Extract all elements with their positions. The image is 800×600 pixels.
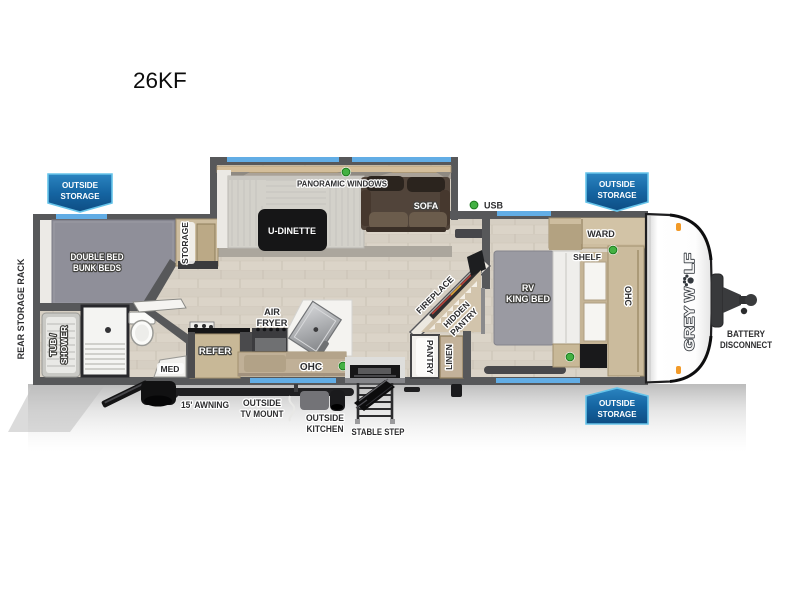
svg-text:BUNK BEDS: BUNK BEDS xyxy=(73,263,121,273)
svg-text:OHC: OHC xyxy=(623,286,633,307)
svg-text:STORAGE: STORAGE xyxy=(61,191,100,201)
svg-text:REFER: REFER xyxy=(199,346,231,357)
svg-text:REAR STORAGE RACK: REAR STORAGE RACK xyxy=(16,258,26,359)
svg-text:MED: MED xyxy=(161,364,180,374)
svg-text:STORAGE: STORAGE xyxy=(598,190,637,200)
svg-text:DISCONNECT: DISCONNECT xyxy=(720,340,772,351)
svg-text:DOUBLE BED: DOUBLE BED xyxy=(71,252,124,262)
svg-text:26KF: 26KF xyxy=(133,68,187,93)
svg-text:USB: USB xyxy=(484,201,504,211)
svg-text:KING BED: KING BED xyxy=(506,294,551,304)
svg-text:OUTSIDE: OUTSIDE xyxy=(599,398,635,408)
svg-text:OUTSIDE: OUTSIDE xyxy=(62,180,98,190)
svg-text:15' AWNING: 15' AWNING xyxy=(181,400,229,411)
svg-text:OUTSIDE: OUTSIDE xyxy=(243,398,281,409)
svg-text:RV: RV xyxy=(522,283,534,293)
svg-text:SHOWER: SHOWER xyxy=(59,326,69,364)
svg-text:LINEN: LINEN xyxy=(444,344,454,370)
svg-text:OUTSIDE: OUTSIDE xyxy=(306,413,344,424)
svg-text:LF: LF xyxy=(682,253,697,274)
svg-text:STORAGE: STORAGE xyxy=(180,222,190,264)
svg-text:KITCHEN: KITCHEN xyxy=(307,424,344,435)
svg-text:PANORAMIC WINDOWS: PANORAMIC WINDOWS xyxy=(297,179,387,189)
svg-text:AIR: AIR xyxy=(264,307,280,317)
svg-text:BATTERY: BATTERY xyxy=(727,329,766,340)
svg-text:TUB /: TUB / xyxy=(48,333,58,356)
svg-text:STABLE STEP: STABLE STEP xyxy=(352,427,406,438)
svg-text:GREY W: GREY W xyxy=(682,287,697,351)
svg-text:STORAGE: STORAGE xyxy=(598,409,637,419)
svg-text:SOFA: SOFA xyxy=(414,201,439,211)
svg-text:OHC: OHC xyxy=(300,362,322,373)
svg-text:FRYER: FRYER xyxy=(257,318,288,328)
svg-text:OUTSIDE: OUTSIDE xyxy=(599,179,635,189)
svg-text:TV MOUNT: TV MOUNT xyxy=(241,409,284,420)
svg-text:PANTRY: PANTRY xyxy=(425,340,435,375)
svg-text:U-DINETTE: U-DINETTE xyxy=(268,226,316,236)
svg-text:WARD: WARD xyxy=(587,229,615,239)
svg-text:SHELF: SHELF xyxy=(573,252,601,262)
